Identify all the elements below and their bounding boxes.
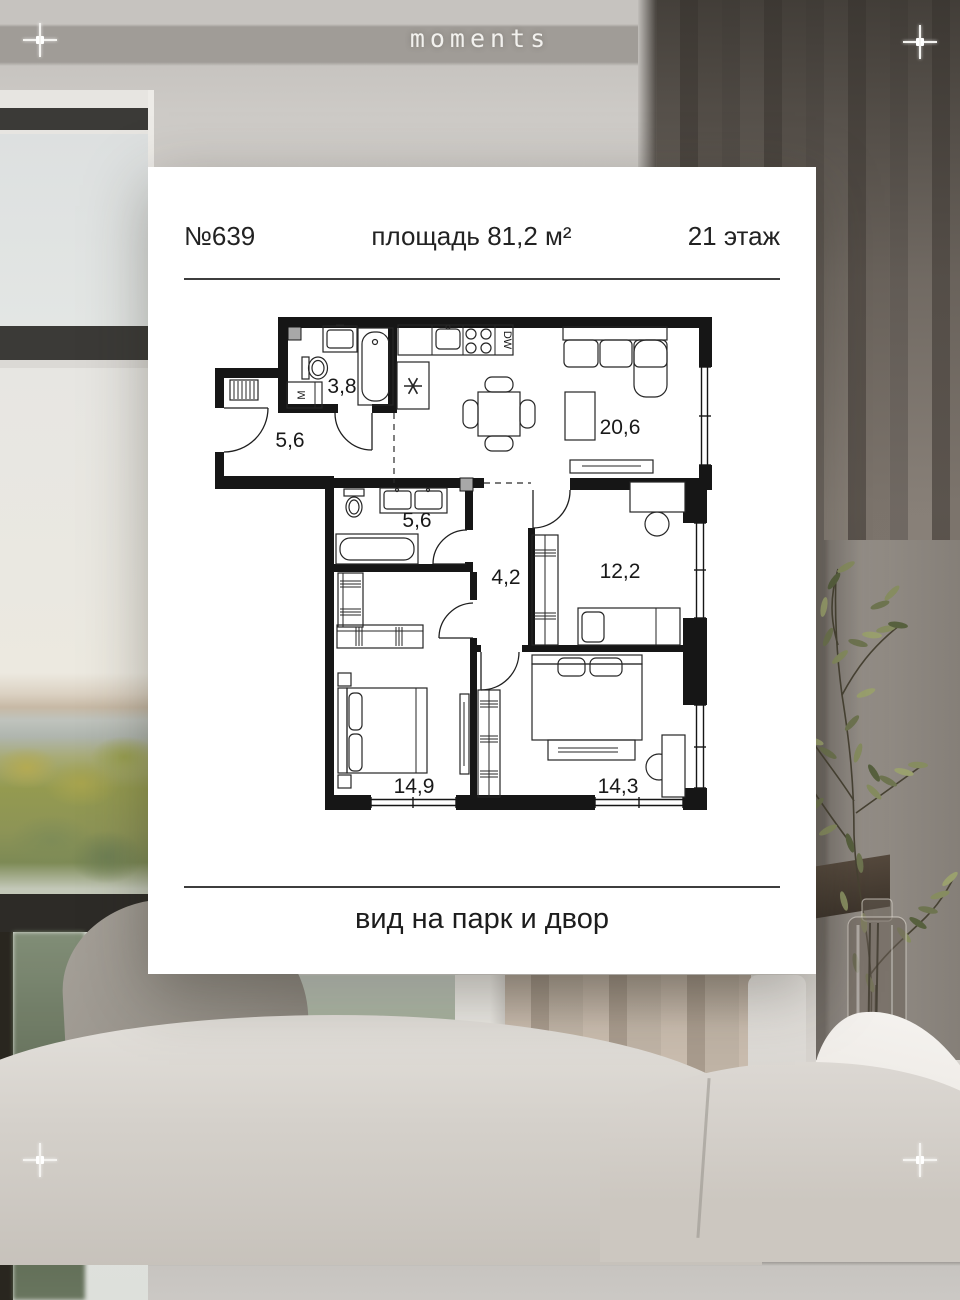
kitchen-sink xyxy=(436,329,460,349)
dining-set xyxy=(463,377,535,451)
door-entry xyxy=(224,408,268,452)
area-label: площадь 81,2 м² xyxy=(255,221,687,252)
desk-second xyxy=(646,735,685,797)
plus-marker-dot xyxy=(36,36,44,44)
bed-second xyxy=(532,655,642,760)
door-bedroom-master xyxy=(439,603,473,638)
room-area-bathroom-small: 3,8 xyxy=(327,375,356,398)
bed-kids xyxy=(578,608,680,645)
room-area-entry-hall: 5,6 xyxy=(275,429,304,452)
shaft xyxy=(460,478,473,491)
window-bedroom-second-right xyxy=(694,705,706,788)
window-park-view xyxy=(0,368,148,894)
footer-divider xyxy=(184,886,780,888)
room-area-kitchen-living: 20,6 xyxy=(600,416,641,439)
kitchen-counter: DW xyxy=(398,325,513,355)
plus-marker-bottom-left xyxy=(23,1143,57,1177)
unit-number: №639 xyxy=(184,221,255,252)
door-bathroom-small xyxy=(335,413,372,450)
door-bedroom-kids xyxy=(533,490,570,528)
plus-marker-top-right xyxy=(903,25,937,59)
window-bedroom-master xyxy=(371,797,456,808)
desk-kids xyxy=(630,482,685,536)
plus-marker-dot xyxy=(36,1156,44,1164)
window-frame-bar xyxy=(0,108,148,130)
plus-marker-bottom-right xyxy=(903,1143,937,1177)
apartment-card: №639 площадь 81,2 м² 21 этаж xyxy=(148,167,816,974)
wardrobe-second xyxy=(478,690,500,797)
window-frame-highlight xyxy=(0,360,148,368)
plus-marker-dot xyxy=(916,1156,924,1164)
window-frame-bar xyxy=(0,326,148,360)
coffee-table xyxy=(565,392,595,440)
window-bedroom-second-bottom xyxy=(595,797,683,808)
corner-sofa xyxy=(563,327,667,397)
plus-marker-dot xyxy=(916,38,924,46)
door-bedroom-second xyxy=(481,652,519,690)
fridge-snowflake-icon xyxy=(404,378,422,394)
stove-burners xyxy=(466,329,491,353)
plus-marker-top-left xyxy=(23,23,57,57)
door-bathroom-main xyxy=(433,530,467,564)
brand-logo: moments xyxy=(0,24,960,53)
tv-console-living xyxy=(570,460,653,473)
washing-machine-label: M xyxy=(296,390,308,399)
window-bedroom-kids xyxy=(694,523,706,618)
header-divider xyxy=(184,278,780,280)
floor-label: 21 этаж xyxy=(688,221,780,252)
closet-master xyxy=(337,573,423,648)
room-area-corridor: 4,2 xyxy=(491,566,520,589)
window-pane-sky xyxy=(0,134,148,326)
shaft xyxy=(288,327,301,340)
dishwasher-label: DW xyxy=(501,331,513,350)
room-area-bedroom-kids: 12,2 xyxy=(600,560,641,583)
nightstand xyxy=(338,673,351,686)
card-header: №639 площадь 81,2 м² 21 этаж xyxy=(148,167,816,252)
window-living xyxy=(699,367,711,465)
entry-rack xyxy=(230,380,258,400)
room-area-bedroom-master: 14,9 xyxy=(394,775,435,798)
nightstand xyxy=(338,775,351,788)
room-area-bathroom-main: 5,6 xyxy=(402,509,431,532)
floor-plan: M DW xyxy=(210,312,715,817)
fridge xyxy=(397,362,429,409)
view-label: вид на парк и двор xyxy=(148,903,816,936)
bed-master xyxy=(338,673,427,788)
tv-board-master xyxy=(460,694,469,774)
room-area-bedroom-second: 14,3 xyxy=(598,775,639,798)
wardrobe-kids xyxy=(532,535,558,645)
desk-chair xyxy=(645,512,669,536)
